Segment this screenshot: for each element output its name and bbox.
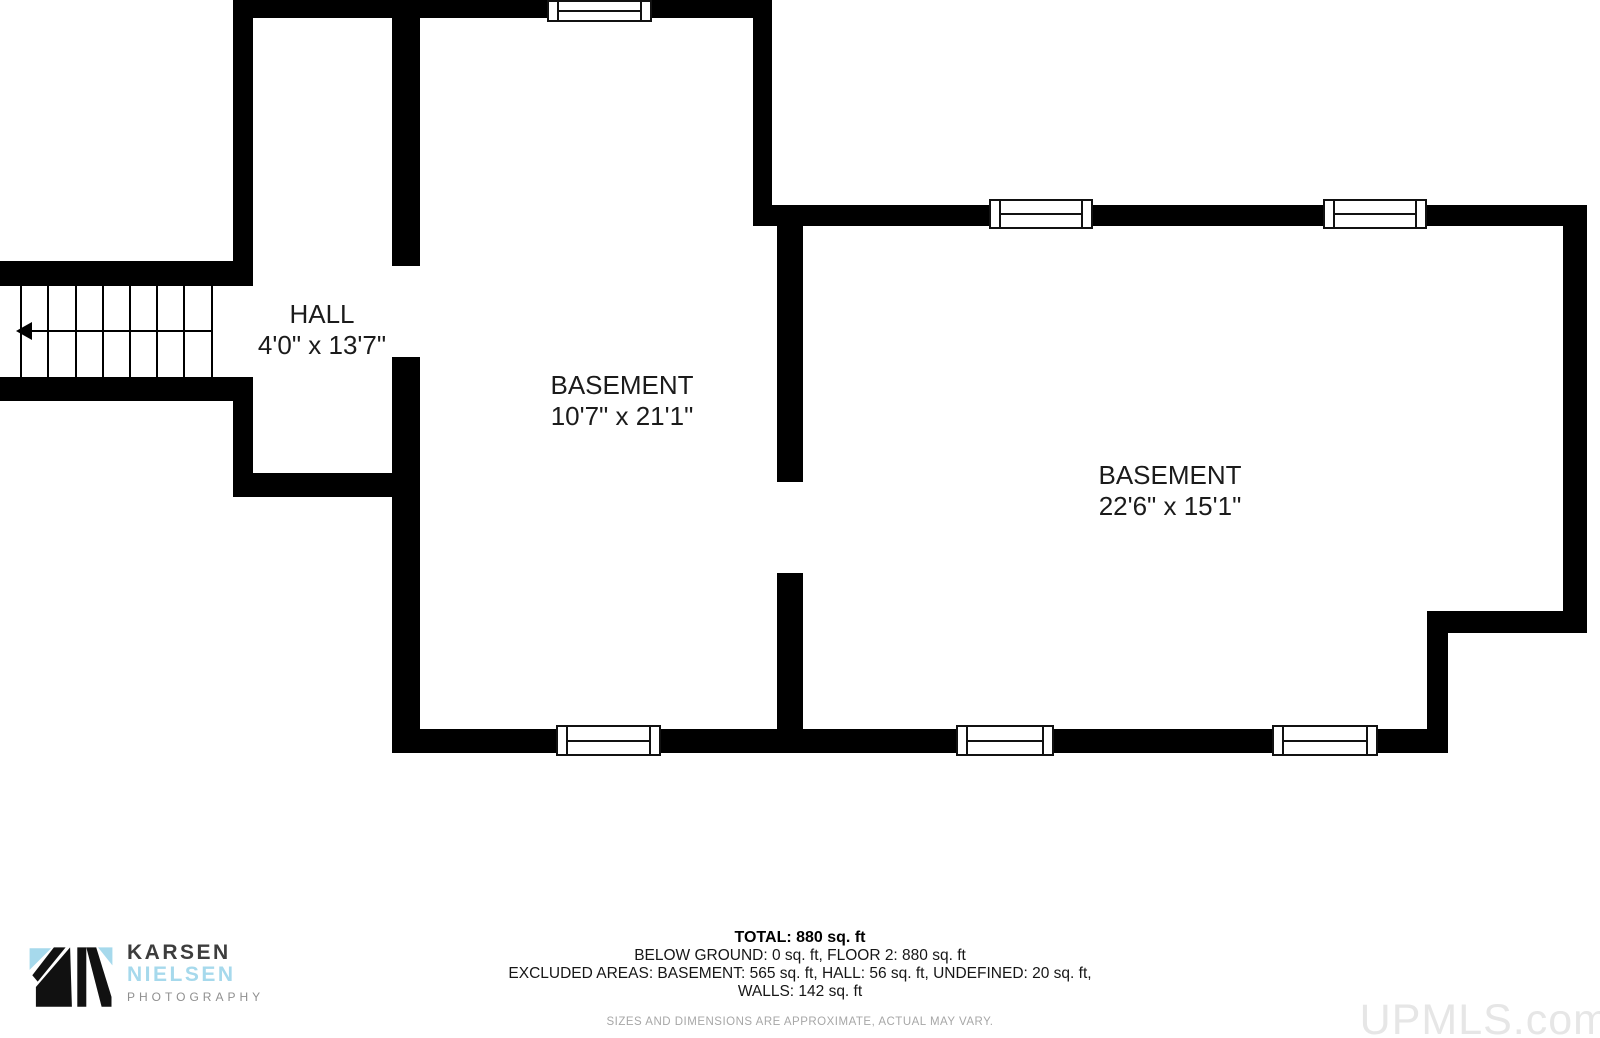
wall-divider-lower xyxy=(777,573,803,729)
wall-mid-right-upper xyxy=(753,18,772,220)
wall-stair-bottom-band xyxy=(0,377,253,401)
window-cap xyxy=(1366,727,1368,754)
wall-notch-horizontal xyxy=(1427,611,1587,633)
wall-rb-right xyxy=(1563,205,1587,633)
stair-direction-line xyxy=(28,330,212,332)
below-ground-line: BELOW GROUND: 0 sq. ft, FLOOR 2: 880 sq.… xyxy=(0,947,1600,965)
window-midline xyxy=(559,10,640,12)
total-area-line: TOTAL: 880 sq. ft xyxy=(0,929,1600,947)
window-cap xyxy=(649,727,651,754)
wall-hall-left-upper xyxy=(233,18,253,261)
window-midline xyxy=(1001,213,1081,215)
wall-top xyxy=(233,0,772,18)
area-summary: TOTAL: 880 sq. ft BELOW GROUND: 0 sq. ft… xyxy=(0,929,1600,1001)
room-name: HALL xyxy=(258,299,386,330)
window-cap xyxy=(1415,201,1417,227)
window-cap xyxy=(1042,727,1044,754)
window-cap xyxy=(1081,201,1083,227)
window-midline xyxy=(1335,213,1415,215)
window-bottom-rb-2 xyxy=(1272,725,1378,756)
staircase xyxy=(14,286,238,377)
room-dimensions: 4'0" x 13'7" xyxy=(258,330,386,361)
wall-hall-right-upper xyxy=(392,18,420,266)
window-midline xyxy=(1284,740,1366,742)
window-midline xyxy=(568,740,649,742)
room-dimensions: 22'6" x 15'1" xyxy=(1098,491,1241,522)
window-bottom-mid xyxy=(556,725,661,756)
window-cap xyxy=(640,2,642,20)
room-dimensions: 10'7" x 21'1" xyxy=(550,401,693,432)
wall-rb-top xyxy=(753,205,1583,226)
room-name: BASEMENT xyxy=(550,370,693,401)
wall-divider-upper xyxy=(777,220,803,482)
wall-hall-right-lower xyxy=(392,357,420,729)
floorplan-page: HALL 4'0" x 13'7" BASEMENT 10'7" x 21'1"… xyxy=(0,0,1600,1038)
room-label-basement-mid: BASEMENT 10'7" x 21'1" xyxy=(550,370,693,432)
wall-hall-left-lower xyxy=(233,401,253,473)
stair-direction-arrow-icon xyxy=(16,322,32,340)
window-midline xyxy=(968,740,1042,742)
window-bottom-rb-1 xyxy=(956,725,1054,756)
room-name: BASEMENT xyxy=(1098,460,1241,491)
excluded-areas-line: EXCLUDED AREAS: BASEMENT: 565 sq. ft, HA… xyxy=(0,965,1600,983)
wall-stair-top-band xyxy=(0,261,253,286)
wall-notch-vertical xyxy=(1427,633,1448,729)
room-label-basement-right: BASEMENT 22'6" x 15'1" xyxy=(1098,460,1241,522)
window-top-mid xyxy=(547,0,652,22)
upmls-watermark: UPMLS.com xyxy=(1360,999,1600,1038)
room-label-hall: HALL 4'0" x 13'7" xyxy=(258,299,386,361)
window-rb-top-2 xyxy=(1323,199,1427,229)
window-rb-top-1 xyxy=(989,199,1093,229)
